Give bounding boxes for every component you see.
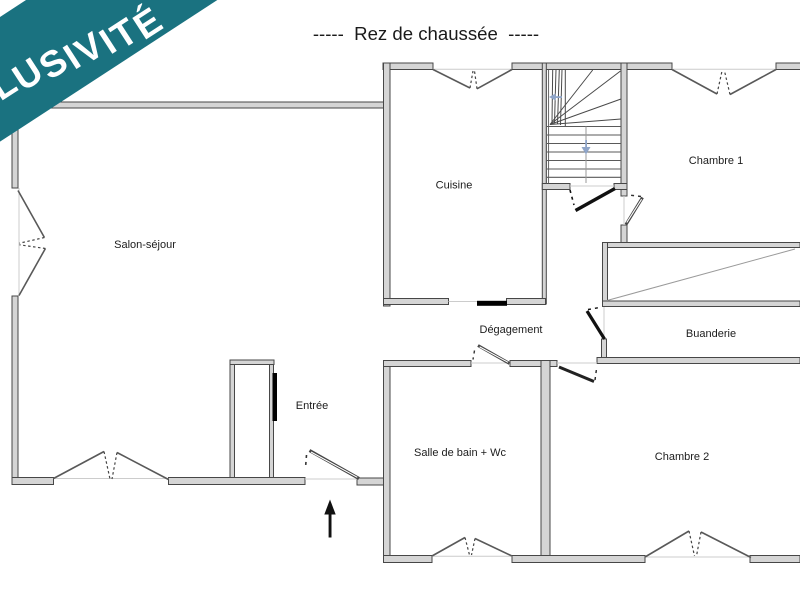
svg-text:Salon-séjour: Salon-séjour — [114, 239, 176, 251]
svg-text:----- Rez de chaussée -----: ----- Rez de chaussée ----- — [313, 23, 539, 44]
svg-text:Dégagement: Dégagement — [480, 324, 543, 336]
svg-text:Entrée: Entrée — [296, 400, 328, 412]
svg-text:Chambre 2: Chambre 2 — [655, 451, 709, 463]
svg-text:Buanderie: Buanderie — [686, 328, 736, 340]
svg-text:Chambre 1: Chambre 1 — [689, 155, 743, 167]
svg-text:Salle de bain + Wc: Salle de bain + Wc — [414, 447, 507, 459]
svg-text:Cuisine: Cuisine — [436, 180, 473, 192]
